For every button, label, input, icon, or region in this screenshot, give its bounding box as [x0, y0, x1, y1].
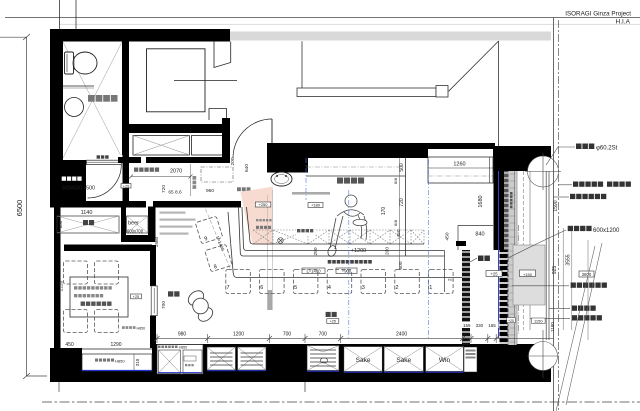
svg-text:500: 500	[399, 163, 405, 172]
svg-text:+150: +150	[523, 272, 533, 277]
svg-text:200: 200	[230, 157, 236, 165]
svg-text:310: 310	[135, 358, 140, 366]
svg-text:165: 165	[463, 323, 471, 328]
svg-text:H=: H=	[448, 278, 453, 282]
svg-text:600x700: 600x700	[127, 229, 144, 234]
svg-text:Win: Win	[439, 357, 451, 364]
svg-text:+20: +20	[508, 319, 514, 323]
svg-text:H.I.A: H.I.A	[616, 19, 631, 26]
svg-text:840: 840	[475, 232, 484, 238]
svg-text:Sake: Sake	[356, 357, 371, 364]
svg-text:Sake: Sake	[396, 357, 411, 364]
svg-text:450: 450	[65, 342, 74, 348]
svg-text:2800: 2800	[582, 272, 592, 277]
svg-text:+1200: +1200	[351, 248, 366, 254]
svg-text:3: 3	[362, 285, 365, 291]
svg-text:1260: 1260	[453, 162, 465, 168]
svg-text:500x500: 500x500	[62, 185, 82, 191]
svg-text:+250: +250	[258, 202, 268, 207]
svg-text:450: 450	[396, 229, 402, 237]
svg-text:720: 720	[161, 185, 167, 193]
svg-text:ISORAGI Ginza Project: ISORAGI Ginza Project	[565, 11, 631, 18]
svg-text:+25: +25	[490, 272, 498, 277]
svg-text:640: 640	[244, 164, 250, 172]
svg-text:1180: 1180	[550, 322, 555, 332]
svg-text:700: 700	[319, 332, 328, 338]
svg-text:500: 500	[398, 261, 404, 269]
svg-text:+25: +25	[133, 295, 139, 299]
svg-text:+180: +180	[311, 203, 321, 208]
svg-text:700: 700	[283, 332, 292, 338]
svg-text:5: 5	[294, 285, 297, 291]
svg-text:1200: 1200	[233, 332, 244, 338]
svg-text:165: 165	[488, 323, 496, 328]
svg-text:φ60.2St: φ60.2St	[596, 146, 618, 152]
svg-text:1: 1	[429, 285, 432, 291]
svg-text:2220: 2220	[59, 280, 65, 291]
svg-text:1140: 1140	[81, 210, 93, 216]
svg-text:beer: beer	[128, 221, 139, 227]
svg-text:720: 720	[399, 198, 405, 207]
svg-text:6: 6	[260, 285, 263, 291]
svg-text:925: 925	[552, 266, 558, 275]
svg-text:200: 200	[385, 247, 391, 255]
svg-text:4: 4	[328, 285, 331, 291]
svg-text:1680: 1680	[478, 195, 484, 207]
svg-text:2: 2	[396, 285, 399, 291]
svg-text:+25: +25	[123, 184, 129, 188]
svg-text:H850: H850	[115, 359, 125, 364]
svg-text:x500: x500	[84, 185, 96, 191]
svg-text:960: 960	[206, 188, 214, 194]
svg-text:6500: 6500	[15, 200, 24, 217]
svg-text:450: 450	[445, 232, 451, 240]
svg-text:330: 330	[476, 323, 484, 328]
svg-text:65 8.6: 65 8.6	[168, 190, 182, 196]
svg-text:980: 980	[178, 332, 187, 338]
svg-text:3555: 3555	[566, 254, 572, 265]
svg-text:H850: H850	[179, 346, 187, 350]
svg-text:600: 600	[58, 220, 63, 228]
svg-text:2070: 2070	[170, 169, 182, 175]
svg-text:1150: 1150	[534, 319, 543, 324]
svg-text:H850: H850	[137, 327, 146, 331]
svg-text:7: 7	[227, 285, 230, 291]
svg-text:170: 170	[381, 207, 387, 216]
svg-text:1290: 1290	[110, 342, 121, 348]
svg-text:700: 700	[161, 301, 167, 309]
svg-text:250: 250	[313, 247, 319, 255]
svg-text:2400: 2400	[396, 332, 407, 338]
svg-text:600x1200: 600x1200	[593, 228, 620, 234]
svg-text:+25: +25	[330, 320, 336, 324]
svg-text:1590: 1590	[553, 200, 559, 211]
